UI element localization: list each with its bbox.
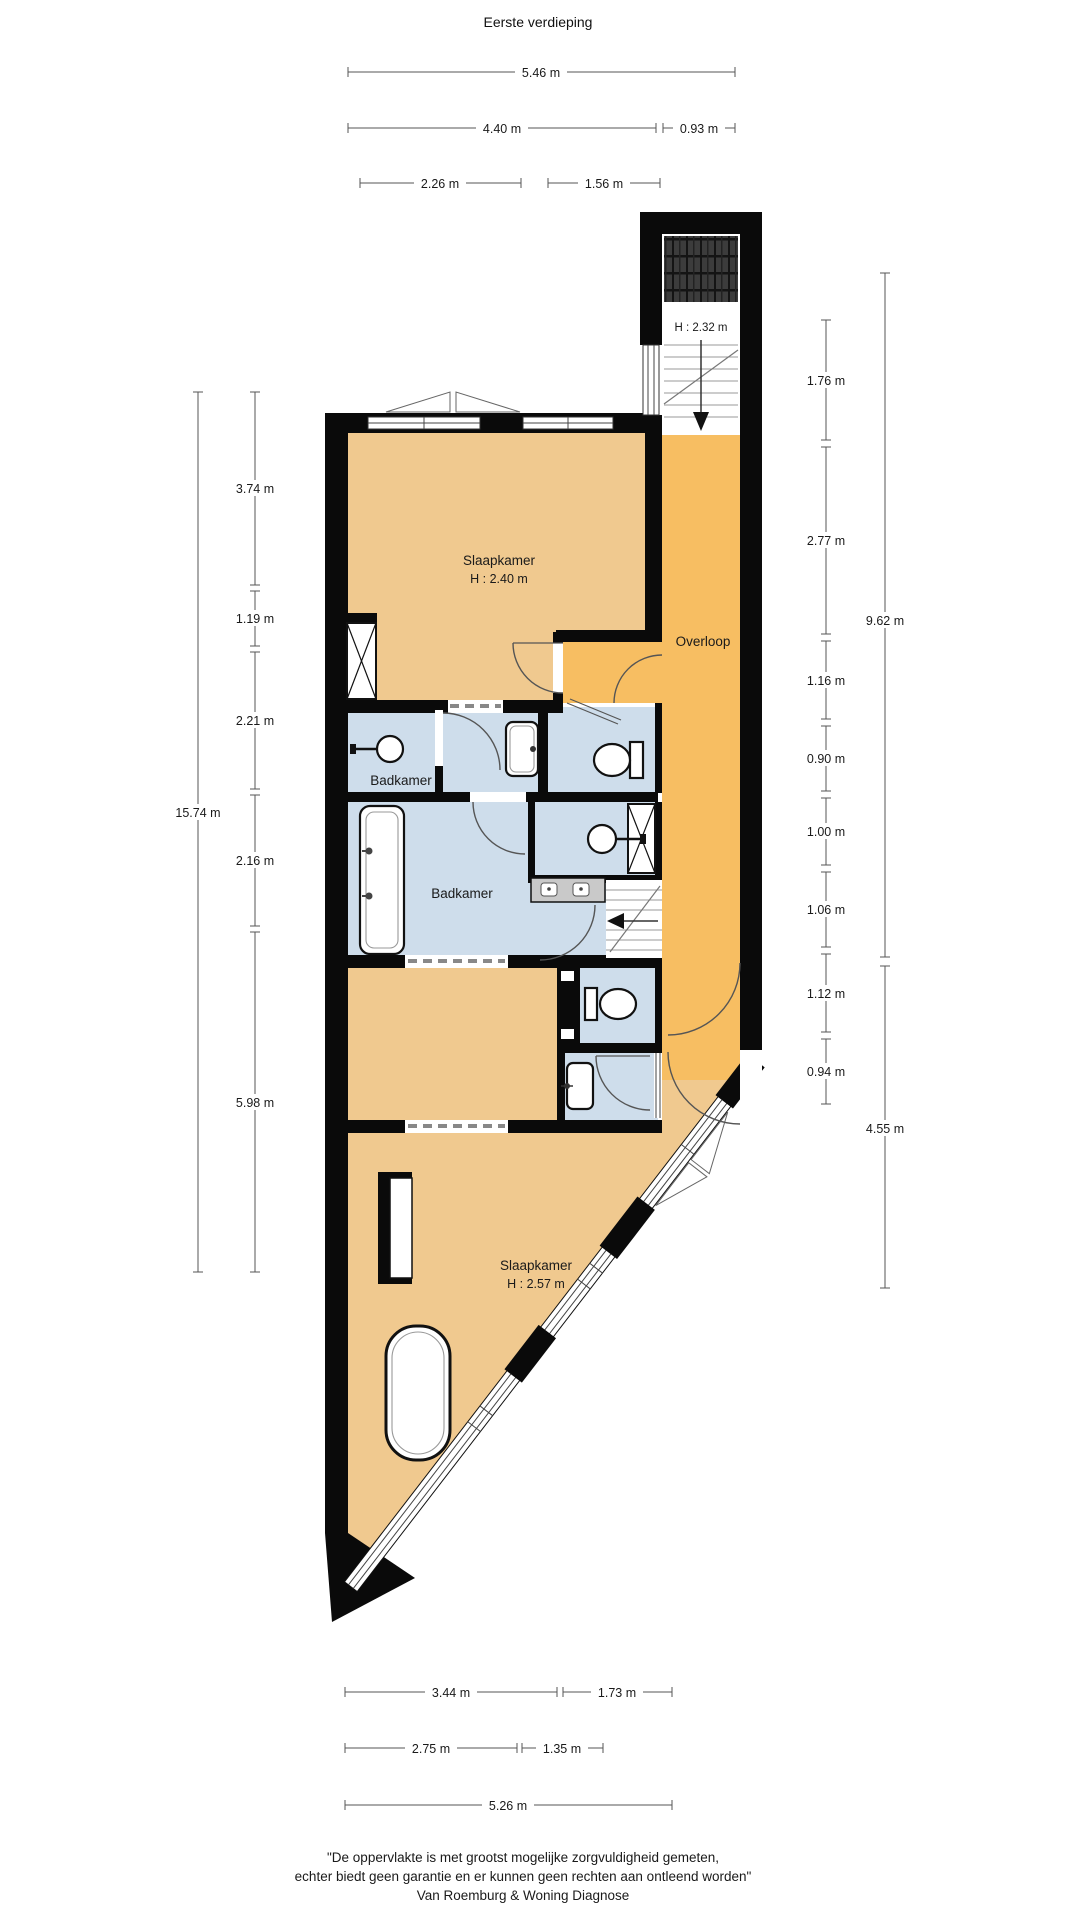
dim-bottom-275: 2.75 m [345,1740,517,1756]
toilet-icon [585,988,636,1020]
page-title: Eerste verdieping [484,14,593,30]
dim-right-455: 4.55 m [859,966,911,1288]
wall-left [325,413,348,1533]
dimensions-top: 5.46 m 4.40 m 0.93 m 2.26 m [348,64,735,191]
svg-text:2.21 m: 2.21 m [236,714,274,728]
dim-right-100: 1.00 m [800,798,852,865]
double-sink-icon [531,878,605,902]
svg-text:1.35 m: 1.35 m [543,1742,581,1756]
dim-top-093: 0.93 m [663,120,735,136]
svg-text:5.46 m: 5.46 m [522,66,560,80]
wall-right [740,212,762,1080]
dim-top-226: 2.26 m [360,175,521,191]
svg-text:9.62 m: 9.62 m [866,614,904,628]
footer-line-3: Van Roemburg & Woning Diagnose [417,1888,630,1903]
door-gap-bath-separator [470,792,526,802]
dim-top-546: 5.46 m [348,64,735,80]
door-gap-hall [553,643,563,693]
window-opening-triangle [386,392,450,412]
door-gap-right-wall [740,1050,762,1114]
label-slaapkamer-bottom-height: H : 2.57 m [507,1277,565,1291]
dim-left-221: 2.21 m [229,652,281,789]
wall-toilet2-bottom [557,1043,662,1053]
window-opening-triangle [456,392,520,412]
dim-left-374: 3.74 m [229,392,281,585]
svg-text:4.55 m: 4.55 m [866,1122,904,1136]
wall-toilet2-right [655,968,662,1043]
dim-left-598: 5.98 m [229,932,281,1272]
wall-bedroom-bottom-b [503,700,563,713]
floorplan-page: Slaapkamer H : 2.40 m Overloop Badkamer … [0,0,1080,1920]
toilet-icon [594,742,643,778]
roof-hatch [664,236,738,302]
dim-right-116: 1.16 m [800,641,852,719]
wall-niche-bottom [561,1029,574,1039]
footer-disclaimer: "De oppervlakte is met grootst mogelijke… [295,1850,752,1903]
dim-right-094: 0.94 m [800,1039,852,1104]
label-badkamer-large: Badkamer [431,886,493,901]
dim-bottom-344: 3.44 m [345,1684,557,1700]
svg-text:1.19 m: 1.19 m [236,612,274,626]
dim-left-1574: 15.74 m [167,392,229,1272]
dim-left-119: 1.19 m [229,591,281,646]
footer-line-1: "De oppervlakte is met grootst mogelijke… [327,1850,719,1865]
door-gap-bath-divider [435,710,443,766]
wall-niche-top [561,971,574,981]
wall-bedroom-corridor [645,433,662,632]
dim-bottom-135: 1.35 m [522,1740,603,1756]
wall-hall-top [556,630,662,642]
svg-text:2.77 m: 2.77 m [807,534,845,548]
stairs-bottom [606,880,662,958]
dim-right-962: 9.62 m [859,273,911,957]
dimensions-left: 3.74 m 1.19 m 2.21 m 2.16 m [167,392,281,1272]
label-overloop: Overloop [676,634,731,649]
floorplan-drawing: Slaapkamer H : 2.40 m Overloop Badkamer … [0,0,1080,1920]
dim-right-090: 0.90 m [800,726,852,791]
dim-left-216: 2.16 m [229,795,281,926]
svg-text:5.26 m: 5.26 m [489,1799,527,1813]
room-hall [556,632,662,703]
svg-text:1.16 m: 1.16 m [807,674,845,688]
wall-bath-right [538,707,548,792]
label-stairwell-height: H : 2.32 m [674,322,727,334]
svg-text:2.16 m: 2.16 m [236,854,274,868]
dim-right-277: 2.77 m [800,447,852,634]
door-frame-sinkroom [654,1053,662,1118]
svg-text:2.75 m: 2.75 m [412,1742,450,1756]
footer-line-2: echter biedt geen garantie en er kunnen … [295,1869,752,1884]
label-slaapkamer-bottom: Slaapkamer [500,1258,573,1273]
closet-icon [347,623,376,699]
svg-text:1.12 m: 1.12 m [807,987,845,1001]
wall-above-closet [325,613,377,623]
svg-text:1.06 m: 1.06 m [807,903,845,917]
svg-text:1.56 m: 1.56 m [585,177,623,191]
wall-stair-left-stub [640,415,662,433]
svg-text:2.26 m: 2.26 m [421,177,459,191]
dim-bottom-526: 5.26 m [345,1797,672,1813]
room-middle [348,968,557,1133]
svg-text:1.73 m: 1.73 m [598,1686,636,1700]
wall-wardrobe-right [655,802,662,875]
label-slaapkamer-top-height: H : 2.40 m [470,572,528,586]
wall-toilet1-right [655,703,662,793]
dimensions-right: 1.76 m 2.77 m 1.16 m 0.90 m [800,273,911,1288]
chimney-niche [390,1178,412,1278]
window-stairwell [643,345,659,415]
svg-text:4.40 m: 4.40 m [483,122,521,136]
dim-right-106: 1.06 m [800,872,852,947]
svg-text:0.90 m: 0.90 m [807,752,845,766]
dim-bottom-173: 1.73 m [563,1684,672,1700]
bathtub-icon [360,806,404,954]
svg-text:3.74 m: 3.74 m [236,482,274,496]
sink-icon [506,722,538,776]
svg-text:15.74 m: 15.74 m [175,806,220,820]
wall-below-closet [325,699,377,713]
svg-text:3.44 m: 3.44 m [432,1686,470,1700]
room-overloop-corridor [662,435,740,1080]
svg-text:5.98 m: 5.98 m [236,1096,274,1110]
svg-text:0.93 m: 0.93 m [680,122,718,136]
dimensions-bottom: 3.44 m 1.73 m 2.75 m 1.35 m [345,1684,672,1813]
dim-top-156: 1.56 m [548,175,660,191]
dim-right-112: 1.12 m [800,954,852,1032]
label-slaapkamer-top: Slaapkamer [463,553,536,568]
svg-text:1.00 m: 1.00 m [807,825,845,839]
svg-text:0.94 m: 0.94 m [807,1065,845,1079]
wall-shower-left [528,802,535,875]
wall-stair-left [640,212,662,345]
dim-right-176: 1.76 m [800,320,852,440]
label-badkamer-small: Badkamer [370,773,432,788]
svg-text:1.76 m: 1.76 m [807,374,845,388]
dim-top-440: 4.40 m [348,120,656,136]
freestanding-bathtub-icon [386,1326,450,1460]
